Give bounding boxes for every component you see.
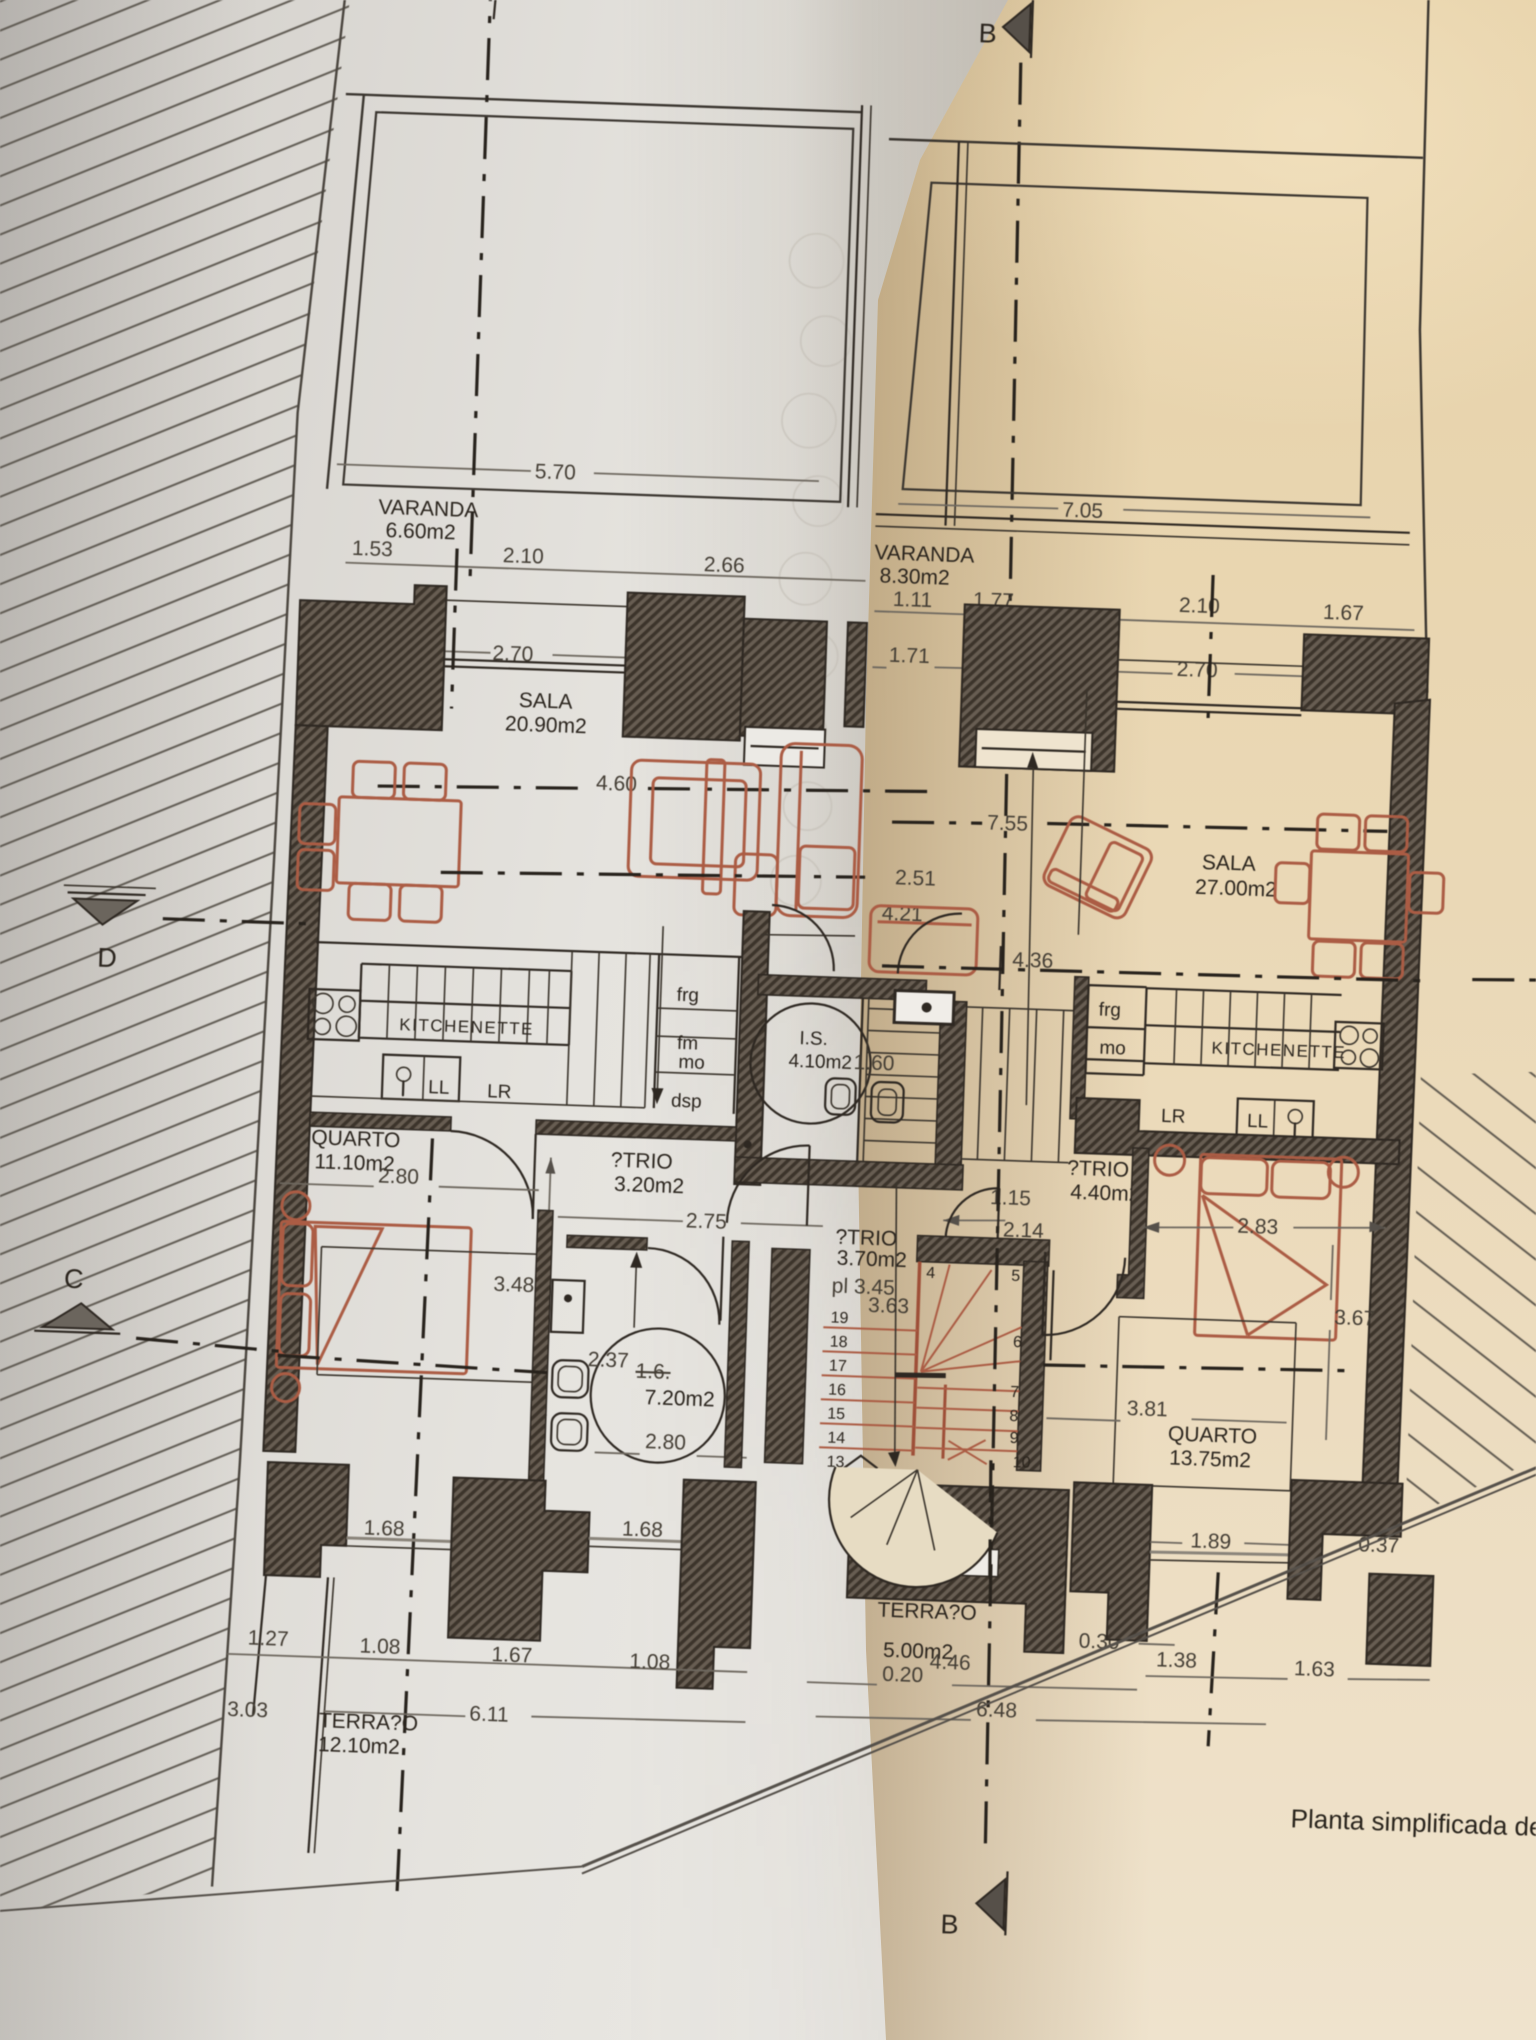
svg-text:4: 4: [926, 1265, 936, 1282]
svg-text:C: C: [64, 1264, 85, 1295]
svg-text:SALA: SALA: [518, 689, 572, 714]
svg-text:8: 8: [1009, 1408, 1019, 1425]
svg-text:1.6.: 1.6.: [635, 1360, 671, 1384]
svg-text:14: 14: [827, 1430, 845, 1448]
svg-text:1.60: 1.60: [853, 1051, 895, 1075]
svg-text:3.03: 3.03: [227, 1698, 269, 1722]
svg-text:7.20m2: 7.20m2: [644, 1386, 715, 1411]
svg-text:mo: mo: [678, 1052, 705, 1074]
svg-text:Planta simplificada de: Planta simplificada de: [1290, 1803, 1536, 1842]
svg-text:B: B: [978, 18, 997, 49]
svg-text:LL: LL: [428, 1077, 450, 1099]
svg-text:2.10: 2.10: [503, 544, 545, 568]
svg-text:2.51: 2.51: [895, 866, 937, 890]
svg-text:5.70: 5.70: [534, 460, 576, 484]
svg-text:7.05: 7.05: [1062, 499, 1104, 523]
svg-text:20.90m2: 20.90m2: [505, 712, 587, 738]
svg-text:LR: LR: [1161, 1106, 1186, 1128]
svg-text:2.10: 2.10: [1179, 594, 1221, 618]
svg-text:2.75: 2.75: [685, 1209, 727, 1233]
svg-text:1.27: 1.27: [247, 1627, 289, 1651]
svg-text:2.37: 2.37: [588, 1348, 630, 1372]
svg-text:6: 6: [1013, 1334, 1023, 1351]
svg-text:D: D: [97, 942, 118, 973]
svg-text:3.48: 3.48: [493, 1273, 535, 1297]
svg-text:17: 17: [829, 1358, 847, 1376]
svg-text:6.60m2: 6.60m2: [385, 519, 456, 544]
svg-text:VARANDA: VARANDA: [378, 496, 479, 522]
svg-text:1.67: 1.67: [1323, 601, 1365, 625]
svg-text:1.67: 1.67: [491, 1643, 533, 1667]
svg-text:19: 19: [830, 1310, 848, 1328]
svg-text:mo: mo: [1099, 1038, 1126, 1060]
svg-text:0.20: 0.20: [882, 1663, 924, 1687]
svg-text:1.71: 1.71: [888, 644, 930, 668]
svg-text:6.11: 6.11: [469, 1702, 509, 1726]
svg-text:1.08: 1.08: [629, 1650, 671, 1674]
svg-text:2.66: 2.66: [703, 553, 745, 577]
svg-text:frg: frg: [1098, 1000, 1121, 1022]
svg-text:KITCHENETTE: KITCHENETTE: [1211, 1039, 1346, 1063]
svg-text:LR: LR: [487, 1081, 512, 1103]
svg-text:6.48: 6.48: [976, 1698, 1018, 1722]
svg-text:5: 5: [1011, 1268, 1021, 1285]
svg-text:?TRIO: ?TRIO: [1067, 1157, 1130, 1182]
svg-text:1.38: 1.38: [1156, 1648, 1198, 1672]
svg-text:3.67: 3.67: [1334, 1306, 1376, 1330]
svg-text:SALA: SALA: [1202, 851, 1256, 876]
svg-text:4.46: 4.46: [929, 1650, 971, 1674]
svg-text:QUARTO: QUARTO: [311, 1126, 401, 1152]
svg-text:1.53: 1.53: [352, 537, 394, 561]
svg-text:1.68: 1.68: [622, 1518, 664, 1542]
svg-text:B: B: [940, 1909, 959, 1940]
svg-text:QUARTO: QUARTO: [1168, 1422, 1258, 1448]
svg-text:I.S.: I.S.: [799, 1028, 828, 1050]
svg-text:VARANDA: VARANDA: [874, 541, 975, 567]
svg-text:KITCHENETTE: KITCHENETTE: [399, 1015, 534, 1039]
svg-text:TERRA?O: TERRA?O: [877, 1599, 977, 1625]
svg-text:3.81: 3.81: [1126, 1397, 1168, 1421]
svg-text:18: 18: [830, 1334, 848, 1352]
svg-text:16: 16: [828, 1382, 846, 1400]
svg-text:4.40m2: 4.40m2: [1070, 1181, 1141, 1206]
svg-text:LL: LL: [1247, 1111, 1269, 1133]
svg-text:15: 15: [827, 1406, 845, 1424]
svg-text:1.11: 1.11: [892, 588, 932, 612]
svg-text:?TRIO: ?TRIO: [611, 1149, 674, 1174]
svg-text:1.08: 1.08: [359, 1634, 401, 1658]
svg-text:4.10m2: 4.10m2: [788, 1051, 852, 1074]
svg-text:3.63: 3.63: [868, 1294, 910, 1318]
svg-text:1.89: 1.89: [1190, 1529, 1232, 1553]
svg-text:8.30m2: 8.30m2: [879, 564, 950, 589]
svg-text:dsp: dsp: [671, 1091, 702, 1113]
svg-text:9: 9: [1009, 1430, 1019, 1447]
svg-text:3.20m2: 3.20m2: [614, 1173, 685, 1198]
svg-text:7: 7: [1010, 1384, 1020, 1401]
svg-text:27.00m2: 27.00m2: [1195, 876, 1277, 902]
svg-text:1.15: 1.15: [990, 1186, 1032, 1210]
svg-text:2.83: 2.83: [1237, 1215, 1279, 1239]
svg-text:1.63: 1.63: [1294, 1657, 1336, 1681]
svg-text:7.55: 7.55: [987, 811, 1029, 835]
svg-text:12.10m2: 12.10m2: [318, 1733, 400, 1759]
svg-text:1.68: 1.68: [363, 1516, 405, 1540]
svg-text:13.75m2: 13.75m2: [1169, 1447, 1251, 1473]
svg-text:frg: frg: [676, 985, 699, 1007]
svg-text:2.80: 2.80: [378, 1165, 420, 1189]
svg-text:10: 10: [1013, 1454, 1031, 1472]
svg-text:2.80: 2.80: [645, 1430, 687, 1454]
